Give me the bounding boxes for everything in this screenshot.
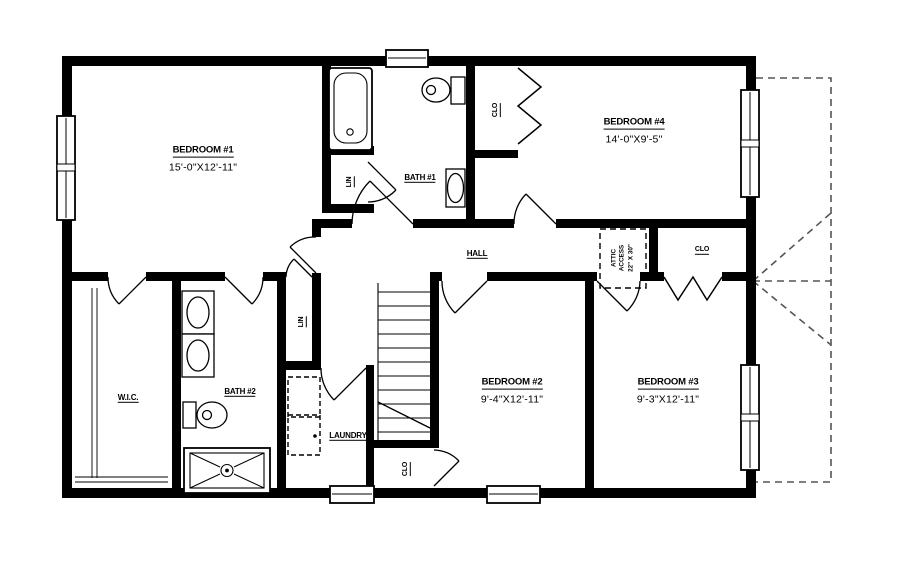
door-linen2 <box>286 259 312 277</box>
bathtub-bath2 <box>184 448 270 493</box>
attic-access-line2: ACCESS <box>619 244 627 272</box>
room-name-bedroom2: BEDROOM #2 <box>482 378 543 390</box>
door-linen1 <box>368 162 396 202</box>
room-dims-bedroom4: 14'-0"X9'-5" <box>605 134 662 146</box>
label-laundry: LAUNDRY <box>329 425 366 443</box>
label-bedroom2: BEDROOM #2 9'-4"X12'-11" <box>481 372 543 409</box>
door-bedroom4 <box>514 194 556 224</box>
washer <box>288 377 320 417</box>
toilet-bath2 <box>183 402 227 428</box>
label-bath2: BATH #2 <box>224 381 255 399</box>
room-name-closet-bed3: CLO <box>695 246 709 255</box>
door-laundry <box>321 368 366 400</box>
label-closet-stairs: CLO <box>394 462 412 476</box>
floor-plan-drawing <box>0 0 900 563</box>
label-linen2: LIN <box>290 317 308 328</box>
room-name-wic: W.I.C. <box>118 393 139 403</box>
door-bedroom3 <box>597 281 640 311</box>
label-bedroom4: BEDROOM #4 14'-0"X9'-5" <box>604 112 665 149</box>
room-name-laundry: LAUNDRY <box>329 431 366 441</box>
room-name-hall: HALL <box>467 249 488 259</box>
room-name-bedroom3: BEDROOM #3 <box>638 378 699 390</box>
label-bedroom3: BEDROOM #3 9'-3"X12'-11" <box>637 372 699 409</box>
bathtub-bath1 <box>329 68 372 150</box>
roof-outline-dashed <box>753 78 831 482</box>
toilet-bath1 <box>422 77 465 104</box>
label-hall: HALL <box>467 243 488 261</box>
room-name-closet-bed4: CLO <box>492 103 501 117</box>
attic-access-size: 22" X 30" <box>627 244 635 272</box>
laundry-drain <box>313 434 317 438</box>
door-bath1 <box>352 181 413 224</box>
door-wic <box>108 277 146 304</box>
room-name-linen2: LIN <box>298 317 307 328</box>
vanity-bath2 <box>182 291 214 377</box>
wic-shelves <box>75 288 168 482</box>
door-bath2 <box>225 277 263 304</box>
door-stair-closet <box>434 450 459 486</box>
room-name-bath1: BATH #1 <box>404 173 435 183</box>
room-name-linen1: LIN <box>346 177 355 188</box>
staircase <box>378 283 430 440</box>
window-bedroom2-bottom <box>487 486 540 503</box>
sink-bath1 <box>446 169 465 207</box>
room-dims-bedroom3: 9'-3"X12'-11" <box>637 394 699 406</box>
label-closet-bed4: CLO <box>484 103 502 117</box>
label-wic: W.I.C. <box>118 387 139 405</box>
label-closet-bed3: CLO <box>695 238 709 256</box>
bifold-closet-bed4 <box>518 68 541 144</box>
room-name-bedroom4: BEDROOM #4 <box>604 118 665 130</box>
bifold-closet-bed3 <box>664 277 722 300</box>
room-dims-bedroom2: 9'-4"X12'-11" <box>481 394 543 406</box>
label-bath1: BATH #1 <box>404 167 435 185</box>
room-name-bath2: BATH #2 <box>224 387 255 397</box>
floor-plan: BEDROOM #1 15'-0"X12'-11" BEDROOM #4 14'… <box>0 0 900 563</box>
window-bedroom3-right <box>741 365 759 470</box>
room-dims-bedroom1: 15'-0"X12'-11" <box>169 162 237 174</box>
label-attic-access: ATTIC ACCESS 22" X 30" <box>611 244 636 272</box>
room-name-closet-stairs: CLO <box>402 462 411 476</box>
door-bedroom2 <box>442 281 487 313</box>
room-name-bedroom1: BEDROOM #1 <box>173 146 234 158</box>
window-bedroom1-left <box>57 116 75 220</box>
attic-access-line1: ATTIC <box>611 244 619 272</box>
window-bath1-top <box>386 50 428 67</box>
label-linen1: LIN <box>338 177 356 188</box>
label-bedroom1: BEDROOM #1 15'-0"X12'-11" <box>169 140 237 177</box>
window-bottom-hall <box>330 486 374 503</box>
window-bedroom4-right <box>741 90 759 197</box>
